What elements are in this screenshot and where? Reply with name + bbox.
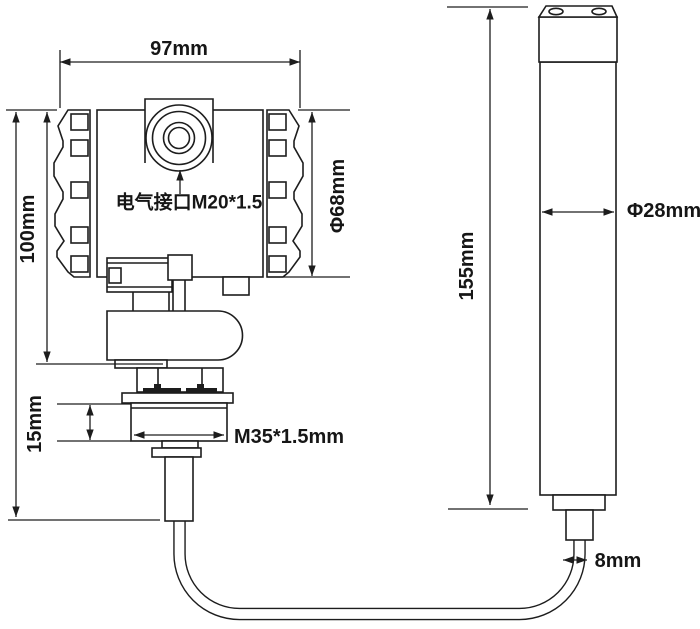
dimensions <box>6 7 614 560</box>
label-15mm: 15mm <box>24 395 46 453</box>
label-dia-28mm: Φ28mm <box>627 200 700 222</box>
probe-neck <box>566 510 593 540</box>
right-cover <box>267 110 303 277</box>
label-conduit-m20: 电气接口M20*1.5 <box>116 191 263 214</box>
label-dia-68mm: Φ68mm <box>327 159 349 233</box>
technical-drawing: 97mm 100mm Φ68mm 电气接口M20*1.5 15mm M35*1.… <box>0 0 700 629</box>
probe-tube <box>540 62 616 495</box>
label-100mm: 100mm <box>17 195 39 264</box>
flange <box>122 393 233 403</box>
label-cable-8mm: 8mm <box>595 550 642 572</box>
conduit-entry-circles <box>146 105 212 171</box>
cap-hole-left <box>549 8 563 14</box>
cable <box>180 521 580 614</box>
process-head <box>107 311 242 360</box>
block-neck <box>162 441 198 448</box>
label-thread-m35: M35*1.5mm <box>234 426 344 448</box>
left-cover <box>54 110 90 277</box>
cable-stem <box>165 457 193 521</box>
bracket-box <box>168 255 192 280</box>
block-collar <box>152 448 201 457</box>
probe-cap-body <box>539 17 617 62</box>
dimension-drawing: 97mm 100mm Φ68mm 电气接口M20*1.5 15mm M35*1.… <box>0 0 700 629</box>
right-step <box>223 277 249 295</box>
label-97mm: 97mm <box>150 38 208 60</box>
label-155mm: 155mm <box>456 232 478 301</box>
cap-hole-right <box>592 8 606 14</box>
transmitter <box>54 99 303 457</box>
probe <box>539 6 617 540</box>
dimension-thread-length-15mm <box>57 404 131 441</box>
probe-collar <box>553 495 605 510</box>
hex-nut <box>137 368 223 393</box>
